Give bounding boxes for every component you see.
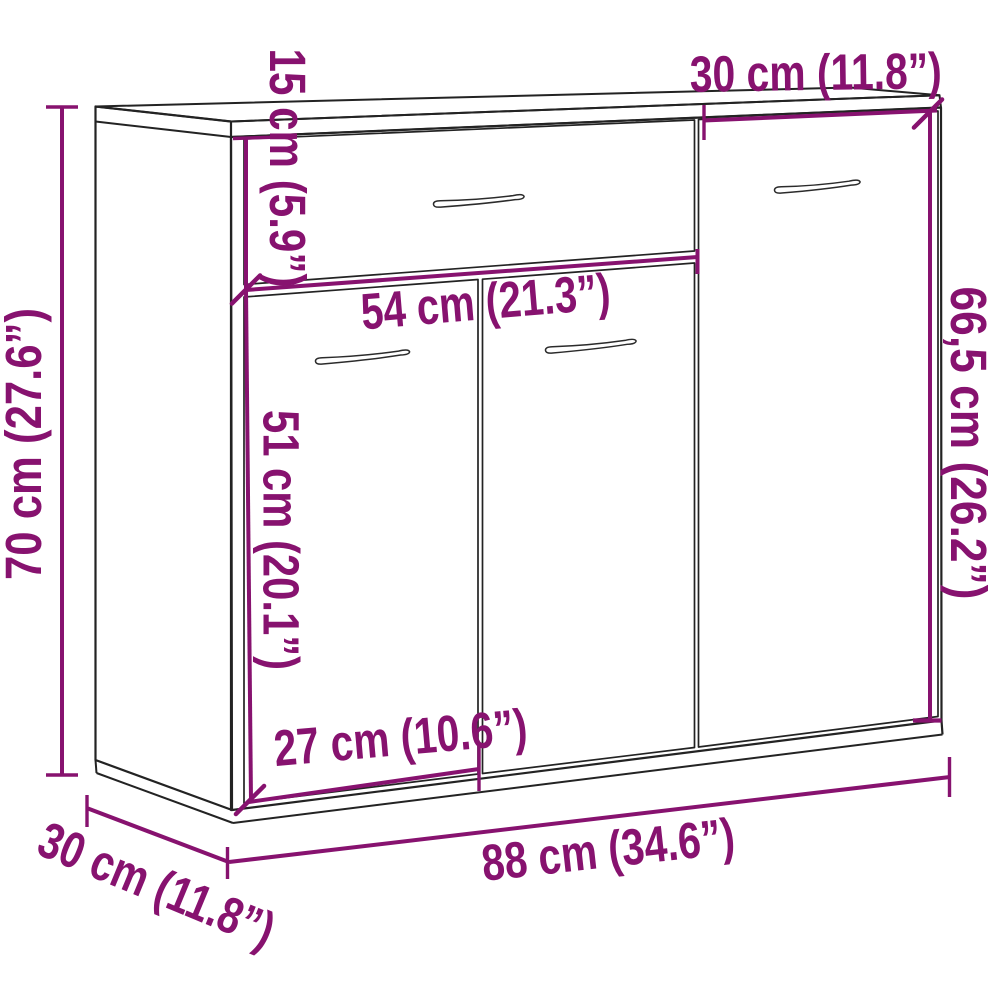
svg-text:27 cm (10.6”): 27 cm (10.6”) (271, 698, 529, 777)
svg-text:51 cm (20.1”): 51 cm (20.1”) (253, 410, 310, 670)
svg-text:54 cm (21.3”): 54 cm (21.3”) (359, 263, 613, 341)
svg-text:30 cm (11.8”): 30 cm (11.8”) (689, 42, 942, 103)
svg-text:88 cm (34.6”): 88 cm (34.6”) (479, 807, 738, 892)
svg-text:15 cm (5.9”): 15 cm (5.9”) (259, 49, 316, 288)
svg-text:66,5 cm (26.2”): 66,5 cm (26.2”) (940, 287, 997, 600)
svg-text:70 cm (27.6”): 70 cm (27.6”) (0, 308, 52, 580)
